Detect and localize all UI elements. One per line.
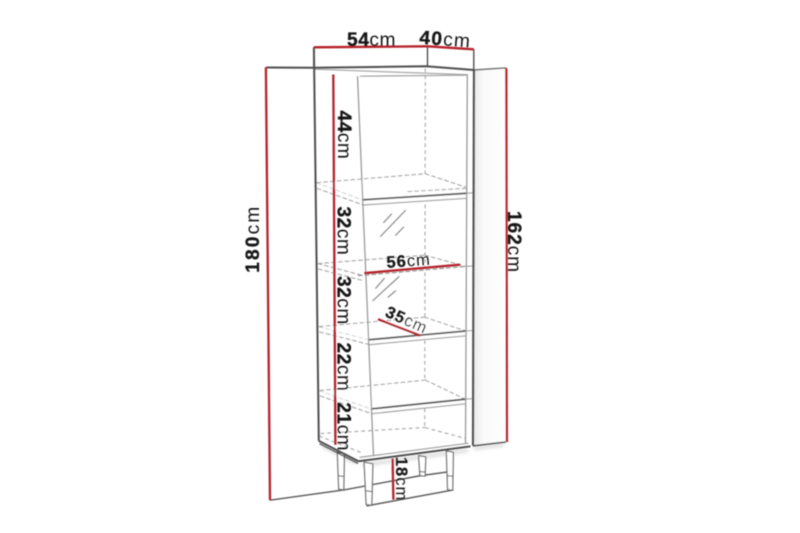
svg-text:162cm: 162cm [503, 211, 524, 273]
svg-text:21cm: 21cm [333, 402, 354, 451]
svg-text:32cm: 32cm [333, 206, 354, 255]
svg-text:54cm: 54cm [347, 30, 396, 51]
svg-text:22cm: 22cm [333, 343, 354, 392]
svg-text:40cm: 40cm [419, 28, 472, 53]
svg-text:32cm: 32cm [333, 276, 354, 325]
svg-text:180cm: 180cm [243, 205, 264, 273]
svg-text:44cm: 44cm [333, 110, 354, 159]
svg-text:56cm: 56cm [386, 251, 432, 272]
svg-text:18cm: 18cm [392, 457, 410, 501]
